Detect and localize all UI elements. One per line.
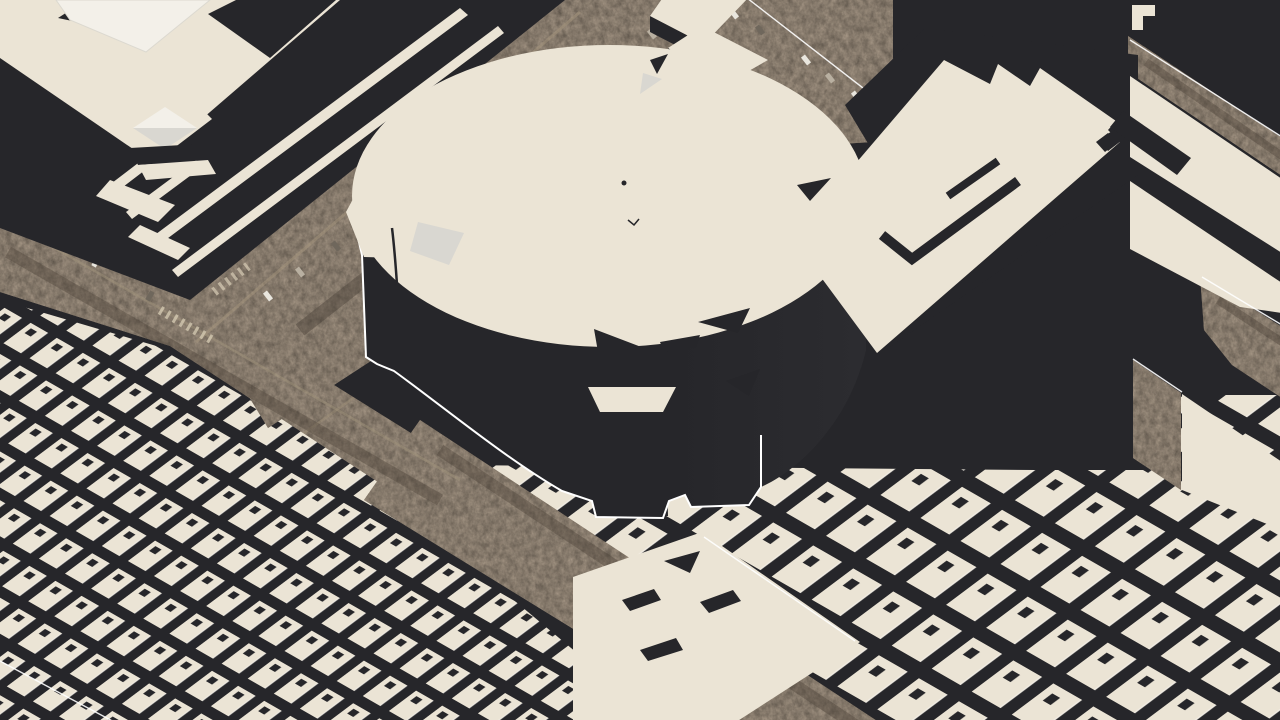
arena-roof-speck [622, 181, 627, 186]
arena-entrance-box [596, 412, 668, 516]
arena-roof [352, 45, 866, 347]
map-canvas[interactable] [0, 0, 1280, 720]
arena-entrance-canopy [588, 387, 676, 412]
map-viewport[interactable] [0, 0, 1280, 720]
